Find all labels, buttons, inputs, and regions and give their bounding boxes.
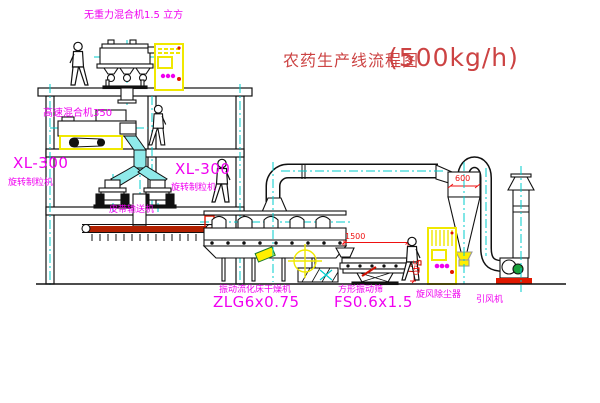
page-title-capacity: (500kg/h) (388, 45, 519, 70)
label-gravity-free-mixer: 无重力混合机1.5 立方 (84, 11, 183, 21)
drawing-canvas: 无重力混合机1.5 立方 高速混合机350 XL-300 旋转制粒机 XL-30… (0, 0, 600, 403)
label-cyclone: 旋风除尘器 (416, 291, 461, 300)
worker-figure (70, 42, 88, 85)
induced-draft-fan (496, 258, 532, 284)
label-granulator-right-model: XL-300 (175, 162, 230, 177)
dim-cyclone-diameter: 600 (455, 175, 470, 183)
label-highspeed-mixer: 高速混合机350 (43, 109, 112, 119)
control-cabinet-lower (428, 228, 456, 284)
label-granulator-right-name: 旋转制粒机 (171, 184, 216, 193)
label-fan: 引风机 (476, 296, 503, 305)
dim-sieve-height: 540 (411, 260, 419, 275)
label-belt-conveyor: 皮带输送机 (109, 206, 154, 215)
label-dryer-model: ZLG6x0.75 (213, 295, 300, 310)
belt-conveyor-machine (82, 225, 214, 242)
label-granulator-left-model: XL-300 (13, 156, 68, 171)
dim-sieve-length: 1500 (345, 233, 365, 241)
label-sieve-model: FS0.6x1.5 (334, 295, 413, 310)
control-cabinet-upper (155, 44, 183, 90)
label-granulator-left-name: 旋转制粒机 (8, 179, 53, 188)
